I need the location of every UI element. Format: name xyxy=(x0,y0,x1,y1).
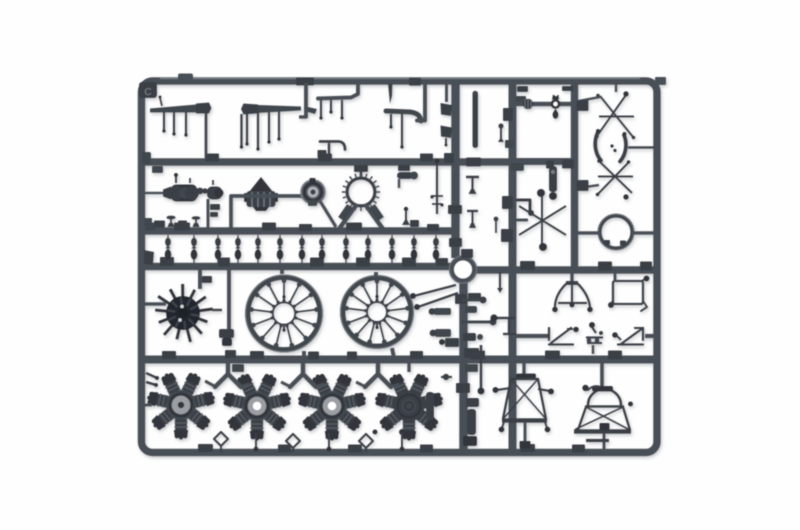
svg-text:C: C xyxy=(144,87,151,98)
